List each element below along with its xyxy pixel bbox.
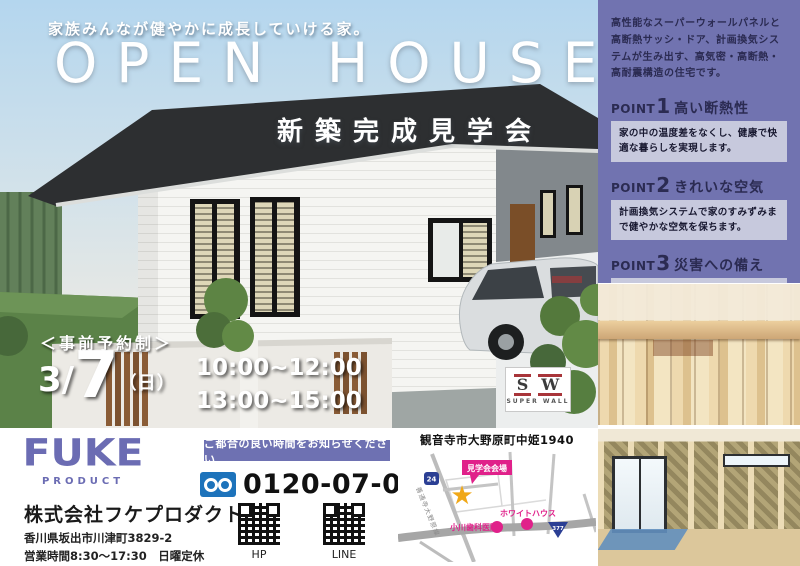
point-3-header: POINT 3 災害への備え xyxy=(611,251,787,275)
point-1-label: POINT xyxy=(611,102,655,116)
sw-letter-w: W xyxy=(538,374,562,397)
hp-qr-code xyxy=(238,503,280,545)
map-title: 観音寺市大野原町中姫1940 xyxy=(398,432,596,448)
landmark-dental-label: 小川歯科医院 xyxy=(449,522,498,532)
route-24-label: 24 xyxy=(427,476,437,484)
photo-blue-sheet xyxy=(598,529,688,550)
point-1-header: POINT 1 高い断熱性 xyxy=(611,94,787,118)
company-name: 株式会社フケプロダクト xyxy=(24,500,244,527)
feature-point-1: POINT 1 高い断熱性 家の中の温度差をなくし、健康で快適な暮らしを実現しま… xyxy=(611,94,787,161)
feature-intro: 高性能なスーパーウォールパネルと高断熱サッシ・ドア、計画換気システムが生み出す、… xyxy=(611,16,787,83)
sw-letter-s: S xyxy=(514,374,532,397)
feature-point-2: POINT 2 きれいな空気 計画換気システムで家のすみずみまで健やかな空気を保… xyxy=(611,173,787,240)
feature-panel: 高性能なスーパーウォールパネルと高断熱サッシ・ドア、計画換気システムが生み出す、… xyxy=(598,0,800,283)
time-afternoon: 13:00~15:00 xyxy=(196,385,362,418)
photo-strip-window xyxy=(723,454,790,468)
point-1-description: 家の中の温度差をなくし、健康で快適な暮らしを実現します。 xyxy=(611,121,787,161)
construction-photo-interior xyxy=(598,429,800,566)
time-morning: 10:00~12:00 xyxy=(196,352,362,385)
event-date: 3/ 7 （日） xyxy=(38,346,176,407)
point-2-label: POINT xyxy=(611,181,655,195)
landmark-dental-dot xyxy=(491,521,503,533)
photo-glass-door xyxy=(612,456,667,533)
point-2-number: 2 xyxy=(656,173,670,197)
feature-point-3: POINT 3 災害への備え モノコック構造が地震・台風など自然災害から家族を守… xyxy=(611,251,787,283)
point-3-title: 災害への備え xyxy=(674,255,764,275)
super-wall-logo: S W SUPER WALL xyxy=(505,367,571,412)
super-wall-caption: SUPER WALL xyxy=(506,398,569,405)
point-2-description: 計画換気システムで家のすみずみまで健やかな空気を保ちます。 xyxy=(611,200,787,240)
point-2-title: きれいな空気 xyxy=(674,177,764,197)
construction-photo-framing xyxy=(598,284,800,425)
open-house-title: OPEN HOUSE xyxy=(54,36,598,91)
company-address: 香川県坂出市川津町3829-2 xyxy=(24,530,172,546)
footer: FUKE PRODUCT 株式会社フケプロダクト 香川県坂出市川津町3829-2… xyxy=(0,428,598,566)
landmark-whitehouse-label: ホワイトハウス xyxy=(500,509,556,518)
point-3-number: 3 xyxy=(656,251,670,275)
access-map: 観音寺市大野原町中姫1940 善通寺大野原線 24 xyxy=(398,432,596,564)
freedial-icon xyxy=(200,472,236,497)
date-weekday: （日） xyxy=(119,369,176,407)
event-times: 10:00~12:00 13:00~15:00 xyxy=(196,352,362,419)
date-day: 7 xyxy=(74,346,119,407)
point-3-label: POINT xyxy=(611,259,655,273)
route-377-label: 377 xyxy=(552,526,564,532)
fuke-logo-sub: PRODUCT xyxy=(22,476,144,487)
hero-visual: 家族みんなが健やかに成長していける家。 OPEN HOUSE 新築完成見学会 ＜… xyxy=(0,0,598,428)
venue-badge-label: 見学会会場 xyxy=(466,463,507,473)
hp-qr-label: HP xyxy=(238,548,280,561)
date-month: 3/ xyxy=(38,363,74,407)
line-qr-label: LINE xyxy=(323,548,365,561)
point-1-number: 1 xyxy=(656,94,670,118)
point-1-title: 高い断熱性 xyxy=(674,98,749,118)
venue-star-icon: ★ xyxy=(450,481,473,511)
contact-banner: ご都合の良い時間をお知らせください xyxy=(204,440,390,461)
fuke-logo-text: FUKE xyxy=(22,434,144,472)
business-hours: 営業時間8:30～17:30 日曜定休 xyxy=(24,548,204,564)
landmark-whitehouse-dot xyxy=(521,518,533,530)
event-subtitle: 新築完成見学会 xyxy=(277,111,543,148)
super-wall-letters: S W xyxy=(514,374,563,397)
map-canvas: 善通寺大野原線 24 見学会会場 ★ 小川歯科医院 ホワイトハウス 377 xyxy=(398,450,596,562)
openhouse-flyer: 家族みんなが健やかに成長していける家。 OPEN HOUSE 新築完成見学会 ＜… xyxy=(0,0,800,566)
line-qr-code xyxy=(323,503,365,545)
point-3-description: モノコック構造が地震・台風など自然災害から家族を守ります。 xyxy=(611,278,787,283)
point-2-header: POINT 2 きれいな空気 xyxy=(611,173,787,197)
fuke-logo: FUKE PRODUCT xyxy=(22,434,144,487)
